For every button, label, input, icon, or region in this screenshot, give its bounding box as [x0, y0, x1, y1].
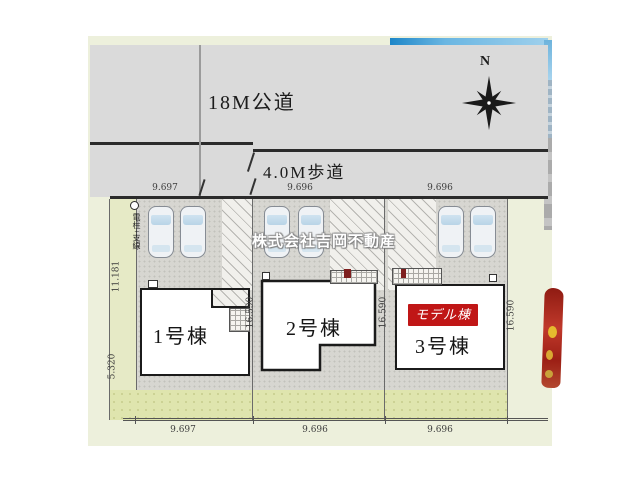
driveway-hatch-lot1	[222, 199, 252, 290]
entrance-marker	[344, 269, 351, 278]
dim-bottom-2: 9.696	[293, 425, 337, 436]
car-icon	[148, 206, 174, 258]
bottom-dimension-line	[123, 418, 548, 421]
car-icon	[180, 206, 206, 258]
dimension-tick	[135, 416, 136, 424]
porch-hatch-building1	[211, 290, 248, 308]
dimension-tick	[253, 416, 254, 424]
dim-bottom-1: 9.697	[161, 425, 205, 436]
photo-edge-flag-dot	[545, 370, 553, 378]
dim-top-1: 9.697	[143, 183, 187, 194]
corner-marker	[489, 274, 497, 282]
corner-marker	[148, 280, 158, 288]
photo-edge-flag-dot	[546, 350, 553, 360]
photo-edge-flag-dot	[548, 326, 557, 338]
utility-pole-label: 電柱+支線	[131, 213, 141, 271]
dimension-tick	[385, 416, 386, 424]
car-icon	[438, 206, 464, 258]
entrance-marker	[401, 269, 406, 278]
dim-left-upper: 11.181	[112, 255, 123, 299]
road-edge-line-right	[253, 149, 548, 152]
compass-icon	[460, 74, 518, 132]
watermark-text: 株式会社吉岡不動産	[252, 230, 396, 251]
building-2-label: 2号棟	[286, 312, 342, 341]
dim-top-2: 9.696	[278, 183, 322, 194]
dim-depth-lot2: 16.590	[379, 291, 390, 335]
car-icon	[470, 206, 496, 258]
sidewalk-label: 4.0M歩道	[263, 158, 345, 183]
site-plan-image: 18M公道 4.0M歩道 9.697 9.696 9.696 電柱+支線	[0, 0, 640, 480]
utility-pole-icon	[130, 201, 139, 210]
dim-depth-lot3: 16.590	[507, 294, 518, 338]
corner-marker	[262, 272, 270, 280]
building-3-label: 3号棟	[415, 330, 471, 359]
compass-north-label: N	[480, 54, 490, 70]
dim-bottom-3: 9.696	[418, 425, 462, 436]
road-center-line	[199, 45, 201, 196]
steps-building2	[330, 270, 378, 284]
dim-left-lower: 5.320	[108, 345, 119, 389]
road-edge-line-left	[90, 142, 253, 145]
steps-building3	[392, 268, 442, 285]
building-1-label: 1号棟	[153, 320, 209, 349]
road-label: 18M公道	[208, 86, 296, 115]
dimension-tick	[507, 416, 508, 424]
model-home-badge: モデル棟	[408, 304, 478, 326]
garden-strip	[110, 390, 508, 420]
dim-top-3: 9.696	[418, 183, 462, 194]
dim-depth-lot1: 16.590	[246, 291, 257, 335]
